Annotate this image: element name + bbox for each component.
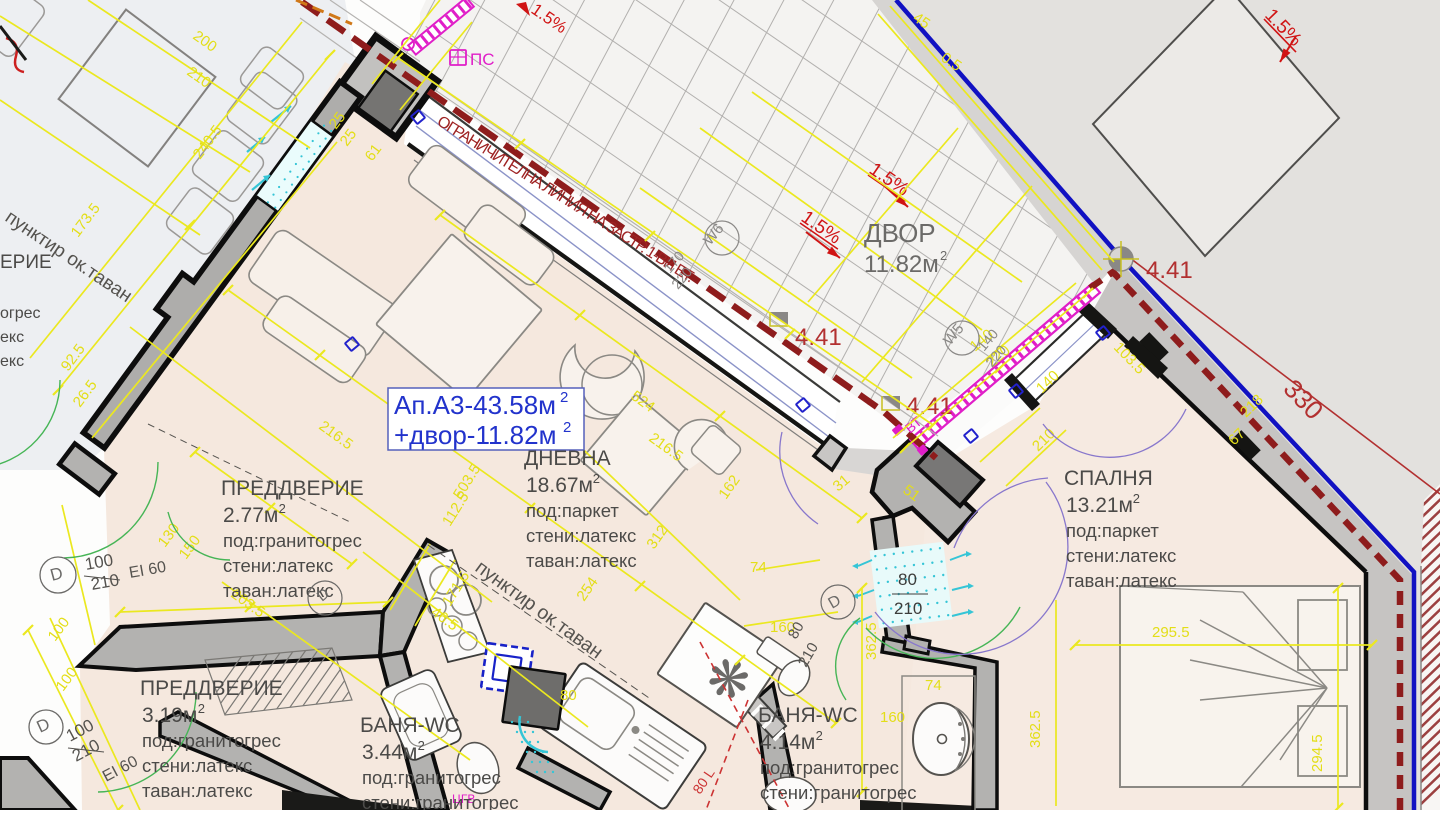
- svg-text:под:паркет: под:паркет: [526, 500, 619, 521]
- svg-text:под:гранитогрес: под:гранитогрес: [362, 767, 501, 788]
- svg-text:2: 2: [816, 728, 823, 743]
- svg-text:74: 74: [750, 559, 767, 576]
- svg-text:13.21м: 13.21м: [1066, 494, 1133, 517]
- svg-text:3.19м: 3.19м: [142, 704, 197, 727]
- svg-text:ПРЕДДВЕРИЕ: ПРЕДДВЕРИЕ: [140, 677, 283, 700]
- svg-text:+двор-11.82м: +двор-11.82м: [394, 420, 556, 450]
- svg-text:4.41: 4.41: [1146, 257, 1193, 284]
- svg-text:ПС: ПС: [470, 50, 495, 69]
- svg-text:2: 2: [940, 248, 947, 263]
- svg-text:ДВОР: ДВОР: [864, 218, 936, 248]
- svg-text:стени:латекс: стени:латекс: [526, 525, 636, 546]
- svg-text:БАНЯ-WC: БАНЯ-WC: [758, 704, 858, 727]
- svg-text:2: 2: [418, 738, 425, 753]
- svg-text:2: 2: [1133, 491, 1140, 506]
- svg-text:2.77м: 2.77м: [223, 504, 278, 527]
- svg-text:80: 80: [560, 687, 577, 704]
- svg-text:3.44м: 3.44м: [362, 741, 417, 764]
- svg-text:под:гранитогрес: под:гранитогрес: [760, 757, 899, 778]
- svg-text:таван:латекс: таван:латекс: [1066, 570, 1177, 591]
- svg-text:210: 210: [894, 599, 922, 618]
- svg-text:таван:латекс: таван:латекс: [526, 550, 637, 571]
- svg-text:2: 2: [563, 419, 571, 436]
- svg-text:362.5: 362.5: [1027, 710, 1044, 748]
- svg-text:таван:латекс: таван:латекс: [142, 780, 253, 801]
- svg-text:160: 160: [880, 709, 905, 726]
- svg-text:2: 2: [279, 501, 286, 516]
- svg-text:11.82м: 11.82м: [864, 251, 939, 278]
- svg-text:екс: екс: [0, 329, 24, 346]
- svg-text:ДНЕВНА: ДНЕВНА: [524, 447, 611, 470]
- svg-text:295.5: 295.5: [1152, 624, 1190, 641]
- svg-text:БАНЯ-WC: БАНЯ-WC: [360, 714, 460, 737]
- svg-text:огрес: огрес: [0, 305, 41, 322]
- svg-text:2: 2: [560, 389, 568, 406]
- svg-text:74: 74: [925, 677, 942, 694]
- svg-text:стени:латекс: стени:латекс: [1066, 545, 1176, 566]
- svg-text:80: 80: [898, 570, 917, 589]
- svg-text:стени:гранитогрес: стени:гранитогрес: [362, 792, 519, 810]
- svg-text:стени:латекс: стени:латекс: [142, 755, 252, 776]
- svg-text:ЕРИЕ: ЕРИЕ: [0, 252, 52, 273]
- svg-text:под:паркет: под:паркет: [1066, 520, 1159, 541]
- svg-text:294.5: 294.5: [1309, 734, 1326, 772]
- svg-text:Ап.А3-43.58м: Ап.А3-43.58м: [394, 390, 556, 420]
- svg-text:СПАЛНЯ: СПАЛНЯ: [1064, 467, 1153, 490]
- svg-text:под:гранитогрес: под:гранитогрес: [223, 530, 362, 551]
- svg-text:екс: екс: [0, 353, 24, 370]
- svg-text:ПРЕДДВЕРИЕ: ПРЕДДВЕРИЕ: [221, 477, 364, 500]
- svg-text:362.5: 362.5: [863, 622, 880, 660]
- svg-text:стени:гранитогрес: стени:гранитогрес: [760, 782, 917, 803]
- svg-text:2: 2: [198, 701, 205, 716]
- svg-text:2: 2: [593, 471, 600, 486]
- svg-text:18.67м: 18.67м: [526, 474, 593, 497]
- svg-text:стени:латекс: стени:латекс: [223, 555, 333, 576]
- svg-text:под:гранитогрес: под:гранитогрес: [142, 730, 281, 751]
- svg-text:4.14м: 4.14м: [760, 731, 815, 754]
